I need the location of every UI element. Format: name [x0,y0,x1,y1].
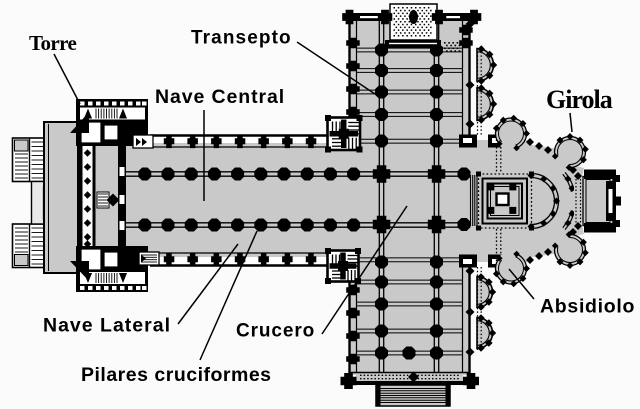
svg-text:Nave Lateral: Nave Lateral [43,315,171,337]
svg-text:Crucero: Crucero [236,321,315,342]
svg-text:Absidiolo: Absidiolo [540,296,635,318]
svg-text:Nave Central: Nave Central [155,86,285,108]
svg-text:Pilares cruciformes: Pilares cruciformes [81,364,272,386]
svg-text:Girola: Girola [546,85,613,114]
svg-text:Transepto: Transepto [191,28,292,49]
svg-text:Torre: Torre [29,31,76,55]
